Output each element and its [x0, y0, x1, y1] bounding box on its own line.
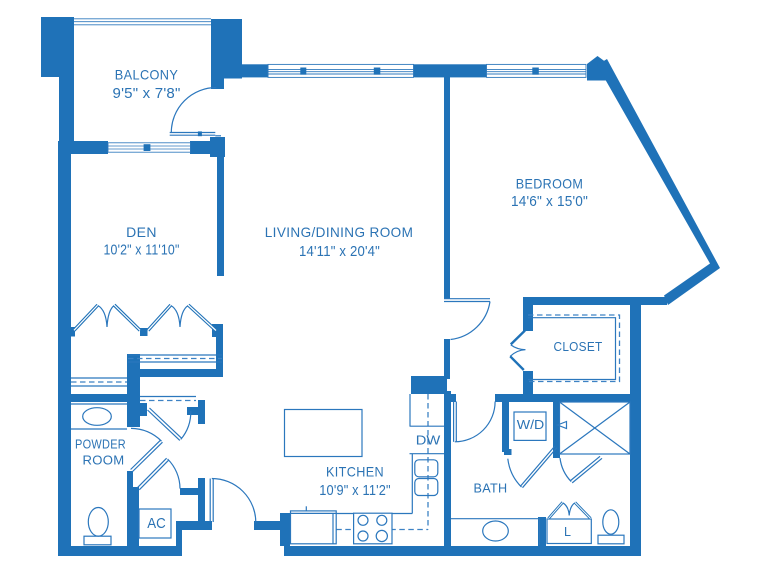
svg-text:BEDROOM: BEDROOM [516, 176, 584, 192]
svg-text:BALCONY: BALCONY [115, 67, 179, 83]
svg-text:LIVING/DINING ROOM: LIVING/DINING ROOM [265, 224, 414, 240]
svg-text:W/D: W/D [517, 418, 545, 432]
svg-text:14'6" x 15'0": 14'6" x 15'0" [511, 193, 588, 210]
svg-text:AC: AC [147, 516, 166, 532]
svg-text:BATH: BATH [474, 482, 508, 496]
svg-text:CLOSET: CLOSET [554, 340, 603, 354]
svg-text:10'9" x 11'2": 10'9" x 11'2" [319, 482, 391, 499]
svg-text:KITCHEN: KITCHEN [326, 464, 384, 480]
svg-text:DW: DW [416, 433, 441, 448]
svg-text:L: L [564, 525, 571, 539]
svg-text:14'11" x 20'4": 14'11" x 20'4" [299, 243, 380, 260]
svg-text:10'2" x 11'10": 10'2" x 11'10" [104, 242, 180, 259]
svg-text:ROOM: ROOM [83, 454, 125, 468]
svg-text:9'5" x 7'8": 9'5" x 7'8" [113, 85, 181, 102]
svg-text:POWDER: POWDER [75, 438, 126, 452]
svg-text:DEN: DEN [126, 224, 157, 240]
